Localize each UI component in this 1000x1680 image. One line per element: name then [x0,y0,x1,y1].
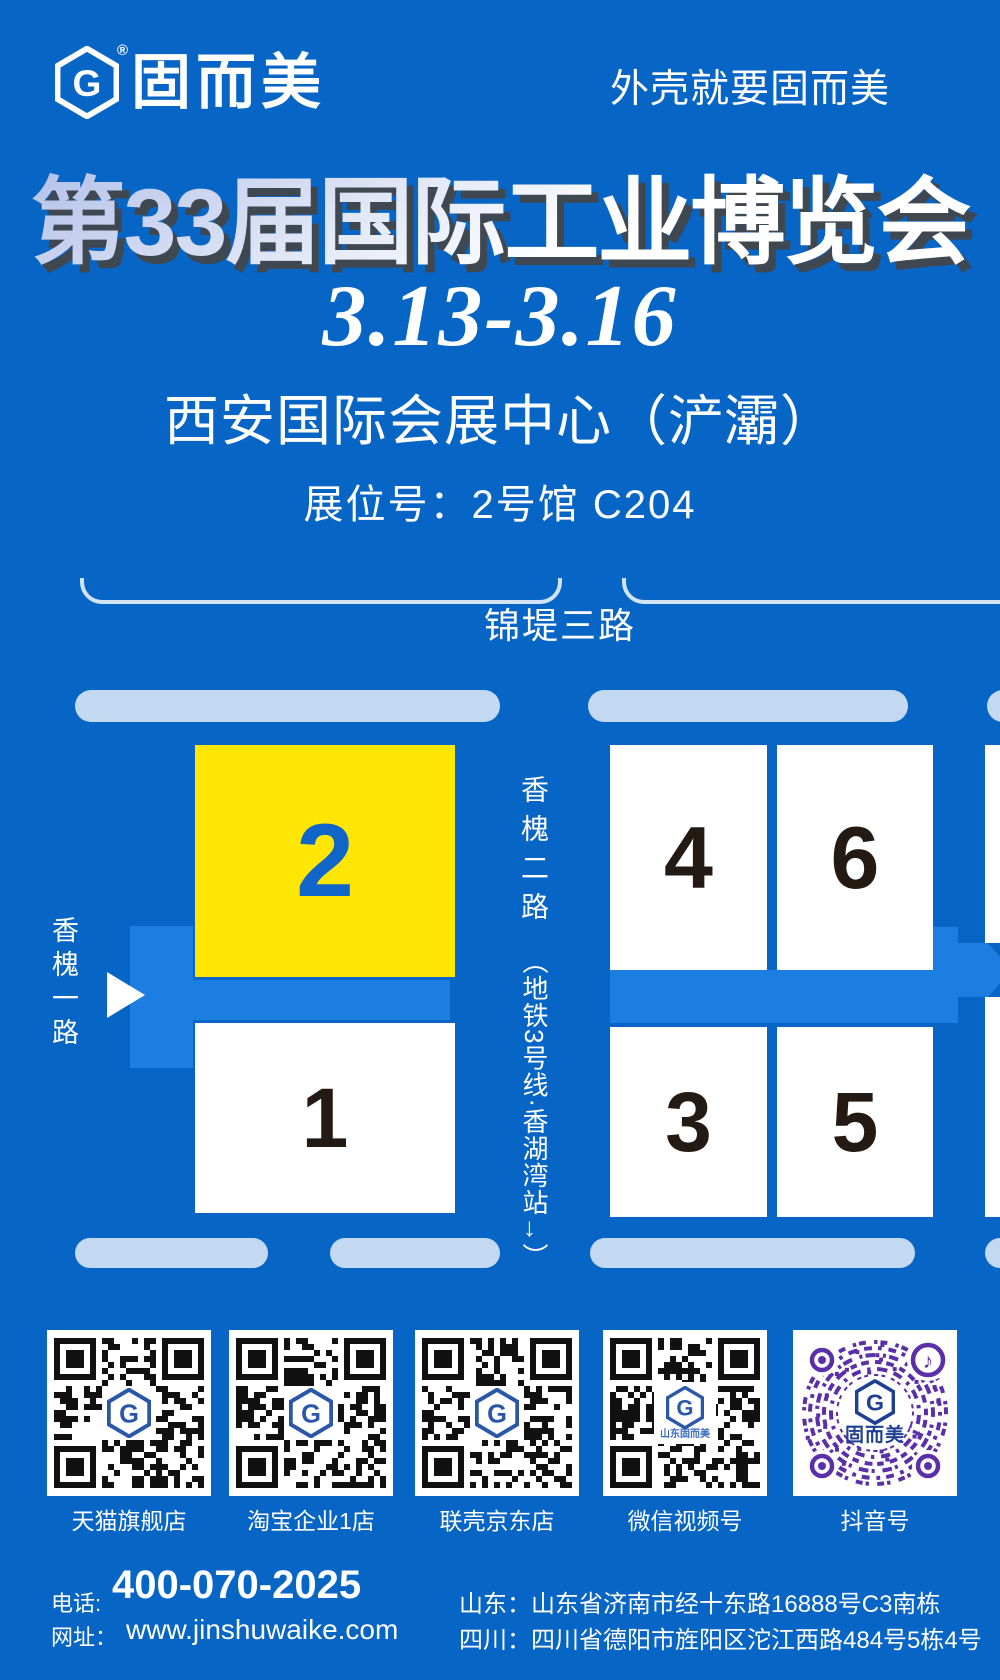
qr-code-jd[interactable]: G [415,1330,579,1496]
map-road-bar [330,1238,500,1268]
svg-text:G: G [676,1395,693,1420]
douyin-brand-name: 固而美 [845,1425,905,1447]
douyin-center-logo: G固而美 [845,1379,905,1447]
brand-hexagon-logo-icon: G [55,46,119,120]
booth-number: 展位号：2号馆 C204 [0,472,1000,530]
phone-label: 电话: [51,1586,101,1618]
phone-number: 400-070-2025 [112,1563,361,1608]
qr-code-wechat-channel[interactable]: G山东固而美 [603,1330,767,1496]
qr-center-logo: G [470,1386,524,1440]
website-url[interactable]: www.jinshuwaike.com [126,1614,398,1646]
road-label-mid: 香槐二路 [513,775,553,931]
qr-label-jd: 联壳京东店 [415,1502,579,1536]
hall-partial-top-right [985,745,1000,943]
address-shandong: 山东：山东省济南市经十东路16888号C3南栋 [459,1584,999,1619]
qr-label-taobao: 淘宝企业1店 [229,1502,393,1536]
hall-3: 3 [610,1027,767,1217]
road-direction-arrow-icon [107,972,145,1018]
brand-slogan: 外壳就要固而美 [600,58,900,114]
expo-dates: 3.13-3.16 [0,266,1000,367]
svg-text:G: G [119,1400,139,1428]
qr-center-subtext: 山东固而美 [660,1429,710,1440]
hall-4: 4 [610,745,767,970]
address-text: 四川省德阳市旌阳区沱江西路484号5栋4号 [531,1627,982,1654]
qr-code-douyin[interactable]: ♪G固而美 [793,1330,957,1496]
road-label-top: 锦堤三路 [420,597,700,649]
road-label-left: 香槐一路 [44,916,83,1052]
svg-text:♪: ♪ [923,1350,934,1373]
expo-poster: G ® 固而美 外壳就要固而美 第33届国际工业博览会 3.13-3.16 西安… [0,0,1000,1680]
qr-center-logo: G [284,1386,338,1440]
map-road-horizontal-left [130,980,450,1020]
hall-2-highlighted: 2 [195,745,455,977]
expo-venue: 西安国际会展中心（浐灞） [0,376,1000,456]
address-region: 四川： [459,1627,531,1654]
qr-label-douyin: 抖音号 [793,1502,957,1536]
address-sichuan: 四川：四川省德阳市旌阳区沱江西路484号5栋4号 [459,1620,999,1655]
address-region: 山东： [459,1591,531,1618]
svg-text:G: G [301,1400,321,1428]
map-road-bar [987,690,1000,722]
website-label: 网址： [51,1620,117,1652]
map-road-bar [75,1238,268,1268]
expo-title: 第33届国际工业博览会 [0,146,1000,283]
map-road-bar [590,1238,915,1268]
brand-name: 固而美 [131,46,326,120]
hall-5: 5 [777,1027,933,1217]
qr-code-taobao[interactable]: G [229,1330,393,1496]
map-road-horizontal-right [958,943,988,997]
hall-partial-bottom-right [985,997,1000,1217]
qr-label-tmall: 天猫旗舰店 [47,1502,211,1536]
map-road-horizontal-mid [610,970,933,1023]
map-road-bar [985,1238,1000,1268]
qr-center-logo: G [102,1386,156,1440]
map-road-step [933,927,958,1023]
hall-1: 1 [195,1023,455,1213]
svg-text:G: G [487,1400,507,1428]
qr-label-wechat-channel: 微信视频号 [603,1502,767,1536]
address-text: 山东省济南市经十东路16888号C3南栋 [531,1591,940,1618]
metro-line-note: （地铁3号线·香湖湾站→） [516,948,553,1270]
map-road-bar [75,690,500,722]
svg-text:G: G [866,1389,884,1415]
registered-trademark-icon: ® [117,42,128,59]
map-road-bar [588,690,908,722]
road-direction-arrow-icon [986,941,1000,999]
qr-code-tmall[interactable]: G [47,1330,211,1496]
svg-text:G: G [73,62,102,104]
hall-6: 6 [777,745,933,970]
qr-center-logo: G山东固而美 [654,1382,716,1444]
